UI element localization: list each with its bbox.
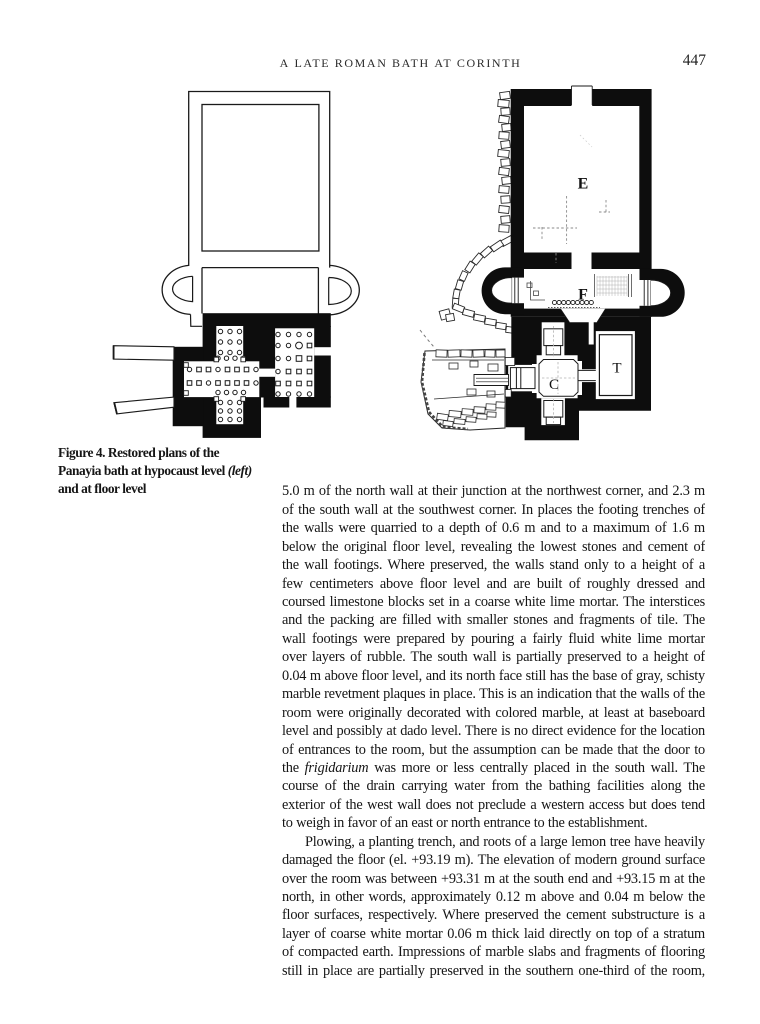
svg-text:T: T bbox=[612, 361, 621, 377]
svg-text:F: F bbox=[578, 287, 588, 304]
svg-text:C: C bbox=[549, 377, 559, 393]
svg-text:E: E bbox=[578, 176, 589, 193]
